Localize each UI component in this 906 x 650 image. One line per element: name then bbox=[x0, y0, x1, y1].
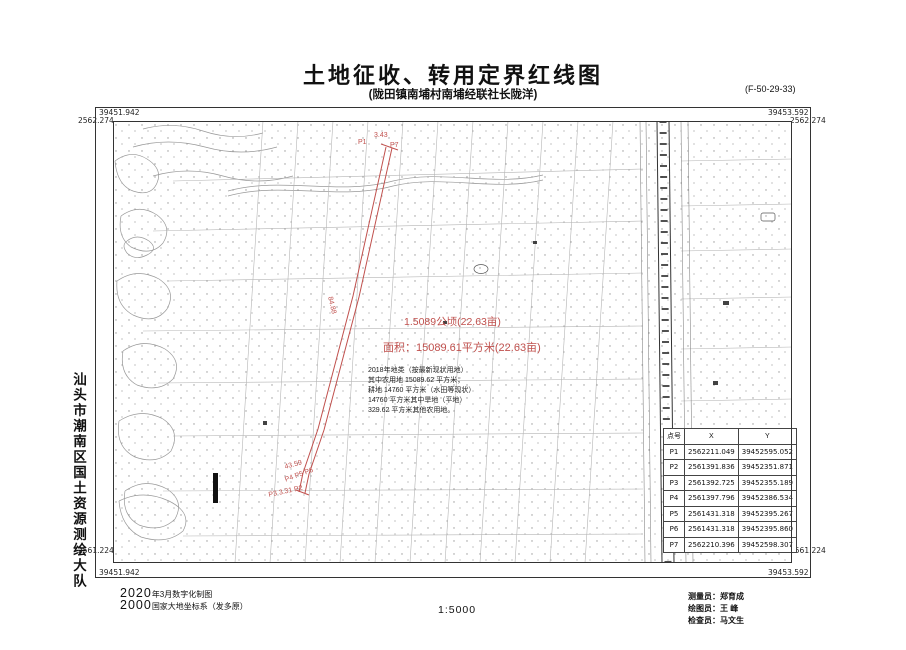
checker-name: 检查员：马文生 bbox=[688, 615, 744, 627]
footer-map-info: 2020年3月数字化制图 2000国家大地坐标系（发多原） bbox=[120, 588, 248, 612]
drafter-name: 绘图员：王 峰 bbox=[688, 603, 744, 615]
agency-vertical-title: 汕头市潮南区国土资源测绘大队 bbox=[66, 372, 88, 589]
map-sheet: 土地征收、转用定界红线图 (陇田镇南埔村南埔经联社长陇洋) (F-50-29-3… bbox=[0, 0, 906, 650]
inner-map-frame bbox=[113, 121, 792, 563]
footer-datum: 2000国家大地坐标系（发多原） bbox=[120, 600, 248, 612]
map-scale: 1:5000 bbox=[438, 604, 476, 616]
sheet-number: (F-50-29-33) bbox=[745, 84, 796, 94]
personnel-block: 测量员：郑育成 绘图员：王 峰 检查员：马文生 bbox=[688, 591, 744, 627]
surveyor-name: 测量员：郑育成 bbox=[688, 591, 744, 603]
